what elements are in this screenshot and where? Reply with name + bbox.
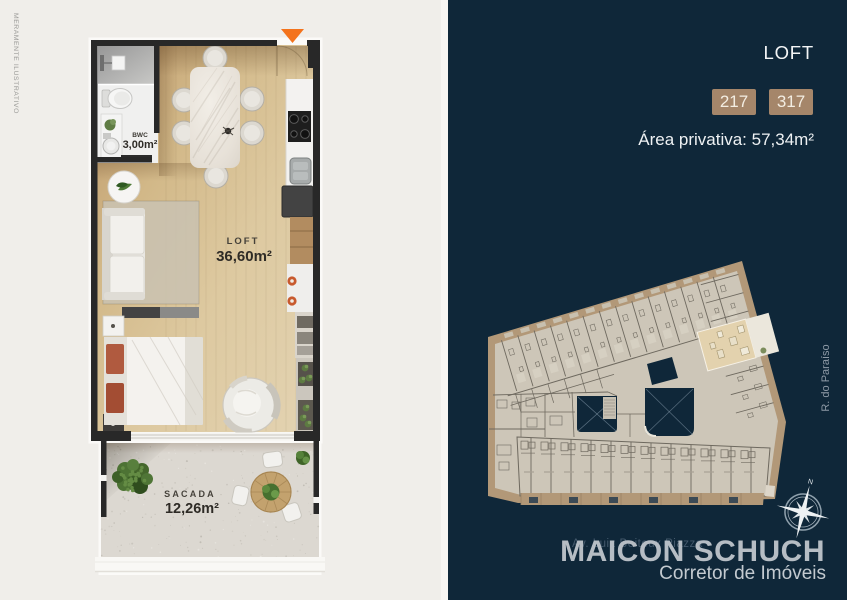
svg-text:36,60m²: 36,60m² <box>216 248 272 265</box>
svg-text:3,00m²: 3,00m² <box>123 139 158 151</box>
svg-text:BWC: BWC <box>132 132 148 139</box>
svg-text:12,26m²: 12,26m² <box>165 501 219 517</box>
svg-text:SACADA: SACADA <box>164 489 216 499</box>
svg-text:LOFT: LOFT <box>227 236 260 247</box>
svg-text:N: N <box>807 478 814 486</box>
svg-text:MERAMENTE ILUSTRATIVO: MERAMENTE ILUSTRATIVO <box>12 13 19 114</box>
